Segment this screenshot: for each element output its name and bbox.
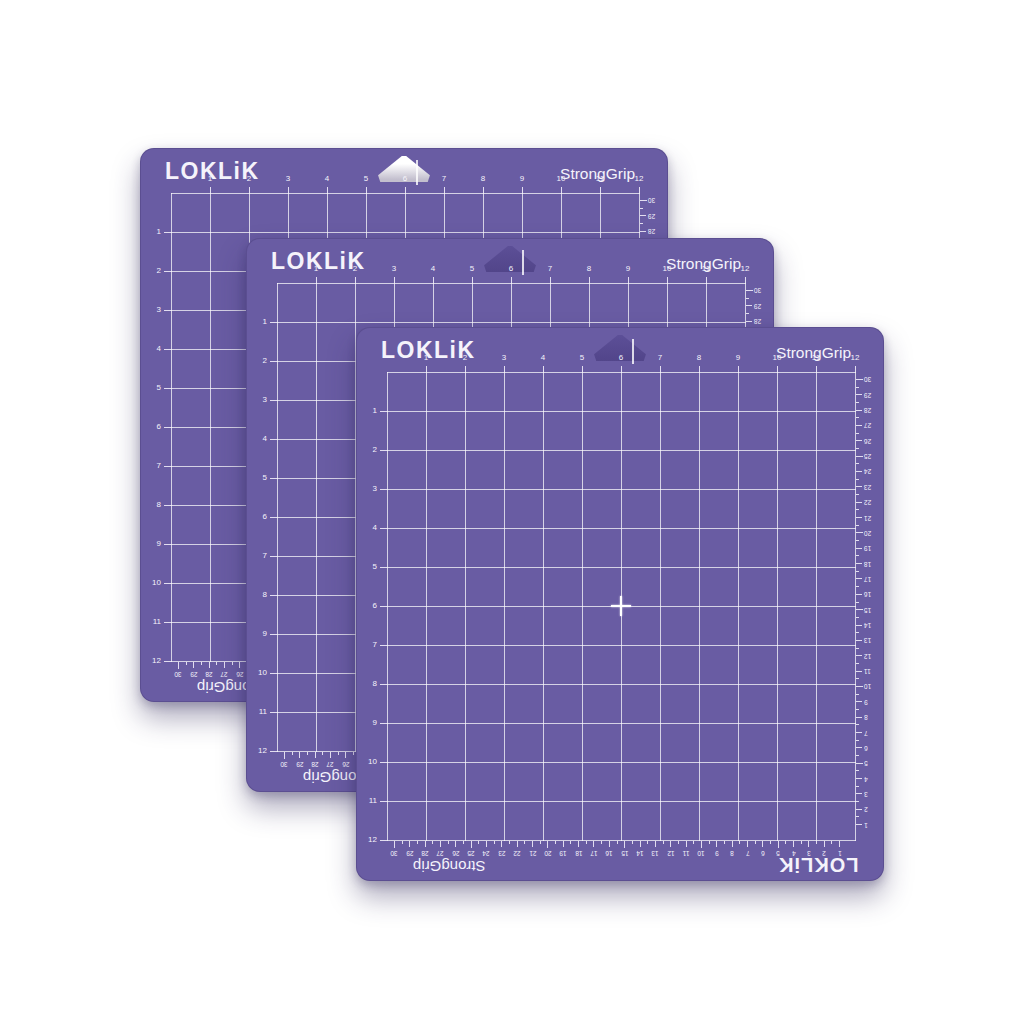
cm-label: 25 xyxy=(864,453,871,460)
inch-label: 7 xyxy=(548,265,552,273)
inch-tick xyxy=(270,712,277,713)
cm-tick-minor xyxy=(856,602,859,603)
cm-tick-minor xyxy=(186,662,187,665)
cm-tick xyxy=(856,486,862,487)
inch-tick xyxy=(380,567,387,568)
cm-label: 17 xyxy=(590,849,597,856)
cm-tick xyxy=(299,752,300,758)
cm-label: 24 xyxy=(864,468,871,475)
cm-tick-minor xyxy=(509,841,510,844)
cm-label: 28 xyxy=(754,318,761,325)
cm-tick-minor xyxy=(856,571,859,572)
cm-label: 28 xyxy=(421,849,428,856)
cm-tick xyxy=(856,701,862,702)
cm-label: 30 xyxy=(864,376,871,383)
cm-tick xyxy=(732,841,733,847)
cm-tick-minor xyxy=(856,678,859,679)
cm-label: 26 xyxy=(452,849,459,856)
inch-tick xyxy=(380,528,387,529)
cm-tick xyxy=(808,841,809,847)
cm-label: 30 xyxy=(175,670,182,677)
inch-tick xyxy=(270,673,277,674)
cm-tick xyxy=(716,841,717,847)
cm-tick xyxy=(856,594,862,595)
cm-label: 16 xyxy=(864,591,871,598)
cm-tick-minor xyxy=(494,841,495,844)
cm-tick xyxy=(856,671,862,672)
inch-label: 8 xyxy=(145,501,161,509)
cm-tick xyxy=(284,752,285,759)
cm-label: 18 xyxy=(864,560,871,567)
grip-label-flipped: StrongGrip xyxy=(413,858,486,875)
cm-tick-minor xyxy=(755,841,756,844)
cm-label: 20 xyxy=(864,530,871,537)
cm-label: 8 xyxy=(730,849,734,856)
cm-label: 14 xyxy=(636,849,643,856)
cm-tick xyxy=(455,841,456,847)
inch-label: 12 xyxy=(361,836,377,844)
cm-tick xyxy=(440,841,441,847)
cm-tick-minor xyxy=(856,387,859,388)
cm-tick xyxy=(640,231,646,232)
inch-label: 2 xyxy=(145,267,161,275)
cm-label: 29 xyxy=(754,302,761,309)
cm-tick xyxy=(856,732,862,733)
cm-tick xyxy=(856,471,862,472)
cm-tick xyxy=(624,841,625,848)
cm-label: 27 xyxy=(864,422,871,429)
cm-label: 21 xyxy=(529,849,536,856)
cm-label: 28 xyxy=(205,670,212,677)
cm-label: 28 xyxy=(648,228,655,235)
hang-hole xyxy=(483,246,537,272)
cm-tick-minor xyxy=(856,648,859,649)
inch-tick xyxy=(380,450,387,451)
inch-tick xyxy=(270,517,277,518)
cm-label: 26 xyxy=(864,438,871,445)
cm-tick-minor xyxy=(478,841,479,844)
cm-label: 22 xyxy=(514,849,521,856)
inch-label: 5 xyxy=(364,175,368,183)
cm-tick-minor xyxy=(448,841,449,844)
cm-tick-minor xyxy=(739,841,740,844)
cm-label: 7 xyxy=(864,729,868,736)
inch-label: 4 xyxy=(361,524,377,532)
cm-tick xyxy=(856,640,862,641)
inch-label: 6 xyxy=(145,423,161,431)
cm-label: 6 xyxy=(761,849,765,856)
cm-label: 9 xyxy=(715,849,719,856)
inch-label: 3 xyxy=(251,396,267,404)
cm-label: 4 xyxy=(864,775,868,782)
cm-tick-minor xyxy=(601,841,602,844)
cm-tick-minor xyxy=(417,841,418,844)
cm-label: 29 xyxy=(864,391,871,398)
cm-label: 10 xyxy=(698,849,705,856)
inch-label: 9 xyxy=(736,354,740,362)
brand-logo: LOKLiK xyxy=(381,337,476,364)
cm-tick xyxy=(746,305,752,306)
cm-label: 21 xyxy=(864,514,871,521)
inch-label: 3 xyxy=(361,485,377,493)
cm-tick-minor xyxy=(724,841,725,844)
inch-tick xyxy=(380,489,387,490)
cm-tick xyxy=(609,841,610,847)
cm-tick xyxy=(856,578,862,579)
inch-tick xyxy=(380,723,387,724)
cm-tick-minor xyxy=(856,617,859,618)
center-crosshair xyxy=(620,596,623,616)
grip-label: StrongGrip xyxy=(560,165,635,183)
hang-hole-mark xyxy=(416,160,418,185)
inch-label: 3 xyxy=(286,175,290,183)
cm-tick xyxy=(856,563,862,564)
cm-tick xyxy=(856,394,862,395)
inch-label: 8 xyxy=(361,680,377,688)
inch-tick xyxy=(164,544,171,545)
inch-label: 1 xyxy=(361,407,377,415)
cm-tick-minor xyxy=(856,663,859,664)
cm-tick-minor xyxy=(856,586,859,587)
inch-label: 3 xyxy=(145,306,161,314)
cm-tick xyxy=(532,841,533,847)
cm-label: 15 xyxy=(864,606,871,613)
inch-tick xyxy=(380,606,387,607)
cm-tick-minor xyxy=(856,417,859,418)
cm-label: 29 xyxy=(406,849,413,856)
cm-tick xyxy=(209,662,210,668)
cm-tick-minor xyxy=(856,724,859,725)
cm-label: 2 xyxy=(864,806,868,813)
inch-label: 11 xyxy=(251,708,267,716)
cm-label: 30 xyxy=(391,849,398,856)
cm-tick-minor xyxy=(816,841,817,844)
cm-tick xyxy=(793,841,794,847)
inch-tick xyxy=(380,645,387,646)
cm-tick xyxy=(856,778,862,779)
cm-label: 28 xyxy=(864,407,871,414)
cm-tick-minor xyxy=(663,841,664,844)
cm-tick xyxy=(640,841,641,847)
inch-tick xyxy=(164,349,171,350)
cm-tick xyxy=(856,763,863,764)
inch-label: 2 xyxy=(361,446,377,454)
brand-logo-flipped: LOKLiK xyxy=(778,853,858,876)
hang-hole xyxy=(593,335,647,361)
cm-label: 27 xyxy=(327,760,334,767)
inch-label: 9 xyxy=(361,719,377,727)
cm-label: 30 xyxy=(648,197,655,204)
cm-tick xyxy=(593,841,594,847)
cm-tick-minor xyxy=(586,841,587,844)
cm-label: 25 xyxy=(468,849,475,856)
inch-label: 9 xyxy=(251,630,267,638)
cm-tick xyxy=(856,824,862,825)
inch-label: 8 xyxy=(251,591,267,599)
inch-tick xyxy=(164,310,171,311)
cm-tick xyxy=(856,747,862,748)
cm-label: 20 xyxy=(544,849,551,856)
inch-tick xyxy=(164,622,171,623)
cm-tick-minor xyxy=(524,841,525,844)
cm-label: 17 xyxy=(864,576,871,583)
inch-tick xyxy=(270,439,277,440)
cm-tick xyxy=(345,752,346,758)
cm-label: 23 xyxy=(498,849,505,856)
cm-tick-minor xyxy=(831,841,832,844)
cm-tick xyxy=(178,662,179,669)
inch-tick xyxy=(164,271,171,272)
inch-tick xyxy=(164,232,171,233)
inch-label: 1 xyxy=(145,228,161,236)
cm-label: 7 xyxy=(746,849,750,856)
cm-tick xyxy=(856,425,862,426)
inch-label: 5 xyxy=(470,265,474,273)
inch-tick xyxy=(270,400,277,401)
cm-tick xyxy=(856,532,863,533)
cm-label: 10 xyxy=(864,683,871,690)
cm-tick xyxy=(640,200,647,201)
cm-label: 9 xyxy=(864,699,868,706)
cm-tick-minor xyxy=(746,313,749,314)
inch-label: 5 xyxy=(251,474,267,482)
cm-tick-minor xyxy=(640,223,643,224)
inch-label: 12 xyxy=(635,175,644,183)
inch-label: 7 xyxy=(442,175,446,183)
cm-tick xyxy=(686,841,687,847)
cm-tick-minor xyxy=(856,816,859,817)
cm-tick-minor xyxy=(292,752,293,755)
inch-tick xyxy=(380,801,387,802)
cm-tick xyxy=(856,548,862,549)
cm-tick-minor xyxy=(856,479,859,480)
inch-label: 12 xyxy=(251,747,267,755)
cm-tick-minor xyxy=(856,463,859,464)
cm-label: 29 xyxy=(648,212,655,219)
cm-tick-minor xyxy=(402,841,403,844)
inch-tick xyxy=(164,388,171,389)
inch-label: 5 xyxy=(361,563,377,571)
cm-tick-minor xyxy=(216,662,217,665)
cm-label: 8 xyxy=(864,714,868,721)
cm-label: 22 xyxy=(864,499,871,506)
inch-tick xyxy=(380,840,387,841)
cm-tick xyxy=(762,841,763,847)
cm-tick xyxy=(856,440,862,441)
cm-tick xyxy=(224,662,225,668)
cm-tick xyxy=(655,841,656,847)
inch-tick xyxy=(270,322,277,323)
inch-label: 7 xyxy=(361,641,377,649)
cm-tick xyxy=(409,841,410,847)
cm-tick xyxy=(486,841,487,847)
cm-label: 19 xyxy=(864,545,871,552)
inch-tick xyxy=(164,427,171,428)
cm-tick-minor xyxy=(678,841,679,844)
cm-tick-minor xyxy=(746,298,749,299)
inch-label: 10 xyxy=(251,669,267,677)
cm-tick xyxy=(193,662,194,668)
cm-label: 13 xyxy=(652,849,659,856)
inch-tick xyxy=(380,411,387,412)
inch-tick xyxy=(380,762,387,763)
cm-label: 26 xyxy=(236,670,243,677)
cm-tick xyxy=(856,655,862,656)
cm-tick-minor xyxy=(856,448,859,449)
cm-tick xyxy=(563,841,564,847)
cm-tick xyxy=(471,841,472,848)
inch-label: 2 xyxy=(251,357,267,365)
cm-tick-minor xyxy=(856,540,859,541)
cm-tick-minor xyxy=(856,555,859,556)
inch-label: 6 xyxy=(251,513,267,521)
cm-tick-minor xyxy=(640,208,643,209)
inch-label: 7 xyxy=(251,552,267,560)
cm-tick-minor xyxy=(647,841,648,844)
cm-tick xyxy=(239,662,240,668)
cm-label: 5 xyxy=(864,760,868,767)
cm-tick-minor xyxy=(570,841,571,844)
cm-tick-minor xyxy=(856,494,859,495)
inch-label: 4 xyxy=(431,265,435,273)
inch-label: 7 xyxy=(145,462,161,470)
inch-label: 1 xyxy=(251,318,267,326)
inch-tick xyxy=(270,478,277,479)
inch-label: 4 xyxy=(325,175,329,183)
cm-tick xyxy=(394,841,395,848)
cm-tick xyxy=(425,841,426,847)
cm-label: 11 xyxy=(864,668,871,675)
cm-tick-minor xyxy=(856,402,859,403)
cm-tick xyxy=(856,809,862,810)
brand-logo: LOKLiK xyxy=(165,158,260,185)
cm-tick xyxy=(578,841,579,847)
cm-tick-minor xyxy=(856,632,859,633)
cm-label: 11 xyxy=(683,849,690,856)
cm-tick-minor xyxy=(353,752,354,755)
cm-tick-minor xyxy=(856,770,859,771)
inch-label: 8 xyxy=(587,265,591,273)
cm-label: 14 xyxy=(864,622,871,629)
cm-label: 23 xyxy=(864,484,871,491)
cm-tick xyxy=(330,752,331,758)
inch-label: 4 xyxy=(541,354,545,362)
cm-tick xyxy=(856,686,863,687)
inch-tick xyxy=(380,684,387,685)
cm-label: 12 xyxy=(864,652,871,659)
hang-hole-mark xyxy=(522,250,524,275)
cm-tick xyxy=(778,841,779,848)
cm-tick-minor xyxy=(432,841,433,844)
cm-tick-minor xyxy=(856,525,859,526)
cm-tick xyxy=(856,625,862,626)
inch-label: 8 xyxy=(697,354,701,362)
cm-label: 3 xyxy=(864,791,868,798)
inch-label: 10 xyxy=(145,579,161,587)
cm-tick xyxy=(640,215,646,216)
inch-label: 7 xyxy=(658,354,662,362)
inch-label: 8 xyxy=(481,175,485,183)
cm-tick-minor xyxy=(232,662,233,665)
cm-label: 29 xyxy=(296,760,303,767)
cm-tick xyxy=(315,752,316,758)
cm-tick-minor xyxy=(856,694,859,695)
cm-label: 30 xyxy=(754,287,761,294)
cm-label: 13 xyxy=(864,637,871,644)
inch-tick xyxy=(270,595,277,596)
inch-label: 12 xyxy=(145,657,161,665)
cm-tick xyxy=(856,456,863,457)
inch-tick xyxy=(270,556,277,557)
cm-tick-minor xyxy=(856,755,859,756)
cm-tick xyxy=(501,841,502,847)
inch-label: 12 xyxy=(851,354,860,362)
inch-label: 9 xyxy=(145,540,161,548)
cm-tick xyxy=(824,841,825,847)
measurement-grid xyxy=(387,372,856,841)
cm-tick-minor xyxy=(856,740,859,741)
cm-tick xyxy=(839,841,840,847)
cm-label: 18 xyxy=(575,849,582,856)
grip-label: StrongGrip xyxy=(776,344,851,362)
inch-label: 9 xyxy=(626,265,630,273)
cm-tick-minor xyxy=(338,752,339,755)
cm-label: 16 xyxy=(606,849,613,856)
cm-label: 6 xyxy=(864,745,868,752)
cm-tick-minor xyxy=(709,841,710,844)
cm-tick-minor xyxy=(540,841,541,844)
cm-tick xyxy=(517,841,518,847)
cm-tick-minor xyxy=(201,662,202,665)
cm-tick-minor xyxy=(322,752,323,755)
inch-label: 11 xyxy=(361,797,377,805)
cm-tick xyxy=(547,841,548,848)
cm-label: 12 xyxy=(667,849,674,856)
cm-tick xyxy=(856,410,862,411)
cm-label: 19 xyxy=(560,849,567,856)
grip-label: StrongGrip xyxy=(666,255,741,273)
inch-label: 12 xyxy=(741,265,750,273)
cm-tick xyxy=(856,379,863,380)
inch-tick xyxy=(270,634,277,635)
inch-label: 11 xyxy=(145,618,161,626)
cm-tick-minor xyxy=(856,801,859,802)
cm-tick-minor xyxy=(856,709,859,710)
inch-tick xyxy=(270,361,277,362)
inch-label: 6 xyxy=(361,602,377,610)
inch-label: 3 xyxy=(392,265,396,273)
inch-label: 9 xyxy=(520,175,524,183)
cm-tick-minor xyxy=(856,786,859,787)
cm-tick xyxy=(670,841,671,847)
inch-label: 5 xyxy=(145,384,161,392)
inch-tick xyxy=(164,583,171,584)
cm-label: 1 xyxy=(864,821,868,828)
cm-tick-minor xyxy=(463,841,464,844)
cm-tick-minor xyxy=(307,752,308,755)
inch-label: 5 xyxy=(580,354,584,362)
cm-tick-minor xyxy=(632,841,633,844)
inch-label: 4 xyxy=(145,345,161,353)
inch-tick xyxy=(164,661,171,662)
cm-tick xyxy=(746,321,752,322)
cm-label: 24 xyxy=(483,849,490,856)
cm-tick xyxy=(747,841,748,847)
inch-label: 3 xyxy=(502,354,506,362)
cm-label: 27 xyxy=(221,670,228,677)
cm-label: 15 xyxy=(621,849,628,856)
cm-tick xyxy=(856,517,862,518)
